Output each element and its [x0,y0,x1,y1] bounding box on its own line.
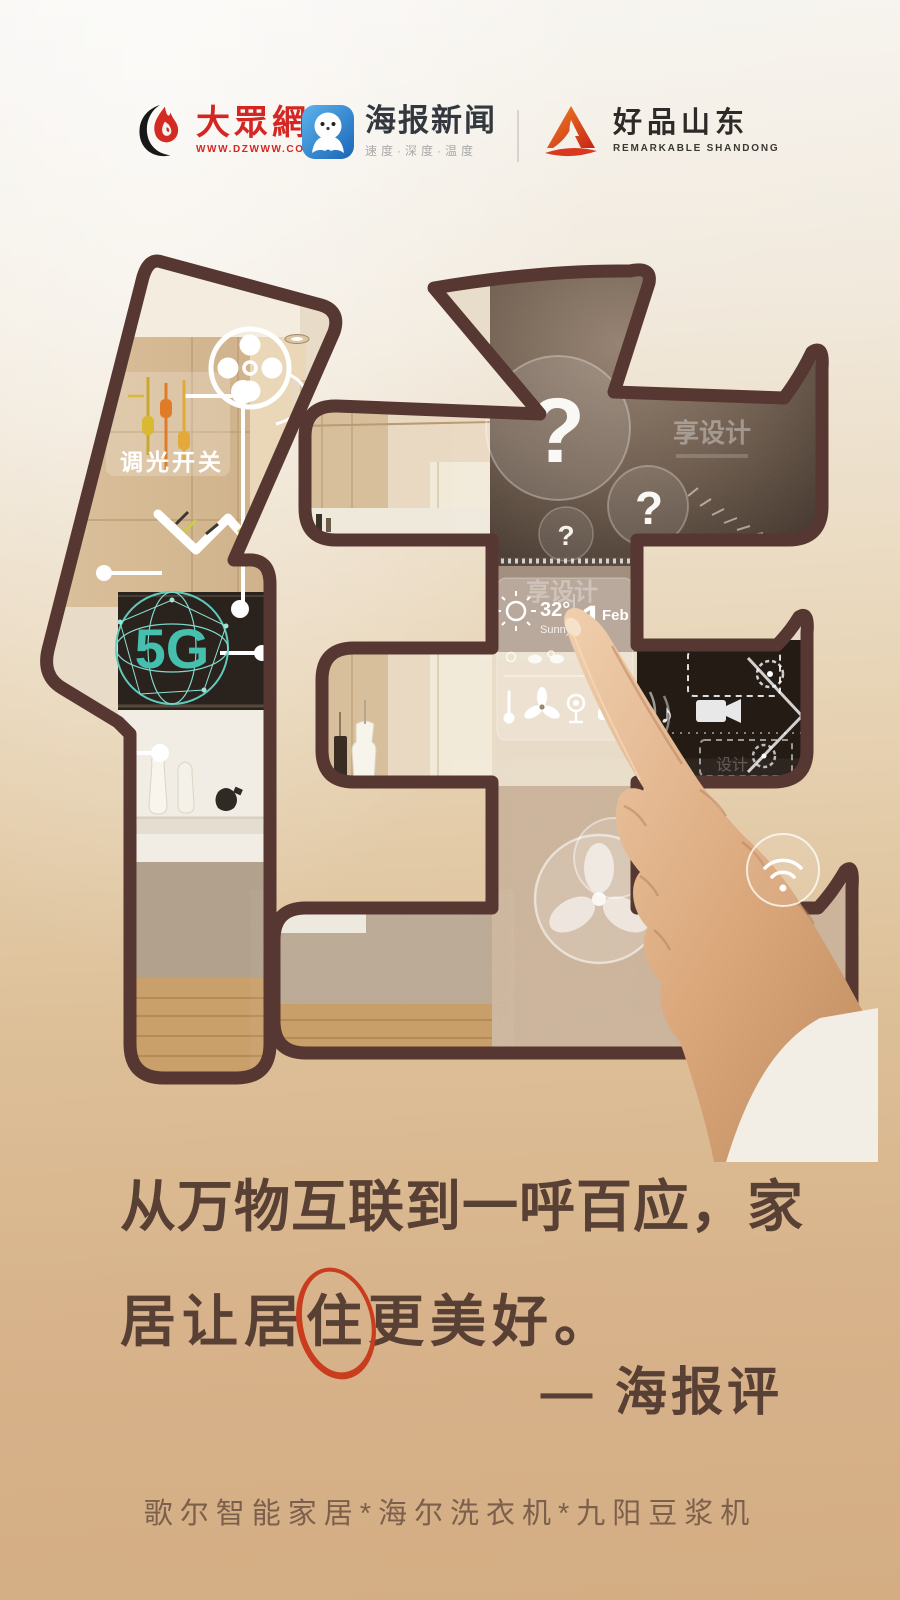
quote-attribution: — 海报评 [541,1350,783,1425]
poster: 大眾網 WWW.DZWWW.COM 海报新闻 [0,0,900,1600]
watermark-text-1: 享设计 [673,418,751,448]
quote-line2-post: 更美好。 [368,1290,616,1353]
highlighted-character: 住 [306,1277,368,1358]
watermark-text-3: 设计 [716,756,748,774]
quote-block: 从万物互联到一呼百应，家 居让居住更美好。 [120,1162,820,1358]
footer-caption: 歌尔智能家居*海尔洗衣机*九阳豆浆机 [0,1490,900,1532]
thermometer-icon [504,713,515,724]
video-camera-icon [696,699,741,723]
quote-line-1: 从万物互联到一呼百应，家 [120,1162,820,1243]
question-mark-medium: ? [635,482,663,534]
quote-line2-pre: 居让居 [120,1290,306,1353]
dimmer-label: 调光开关 [120,449,224,475]
question-mark-large: ? [529,380,585,482]
wifi-badge-icon [747,834,819,906]
quote-line-2: 居让居住更美好。 [120,1277,820,1358]
five-g-label: 5G [135,617,210,680]
question-mark-small: ? [557,520,574,551]
weather-month: Feb [602,607,629,624]
